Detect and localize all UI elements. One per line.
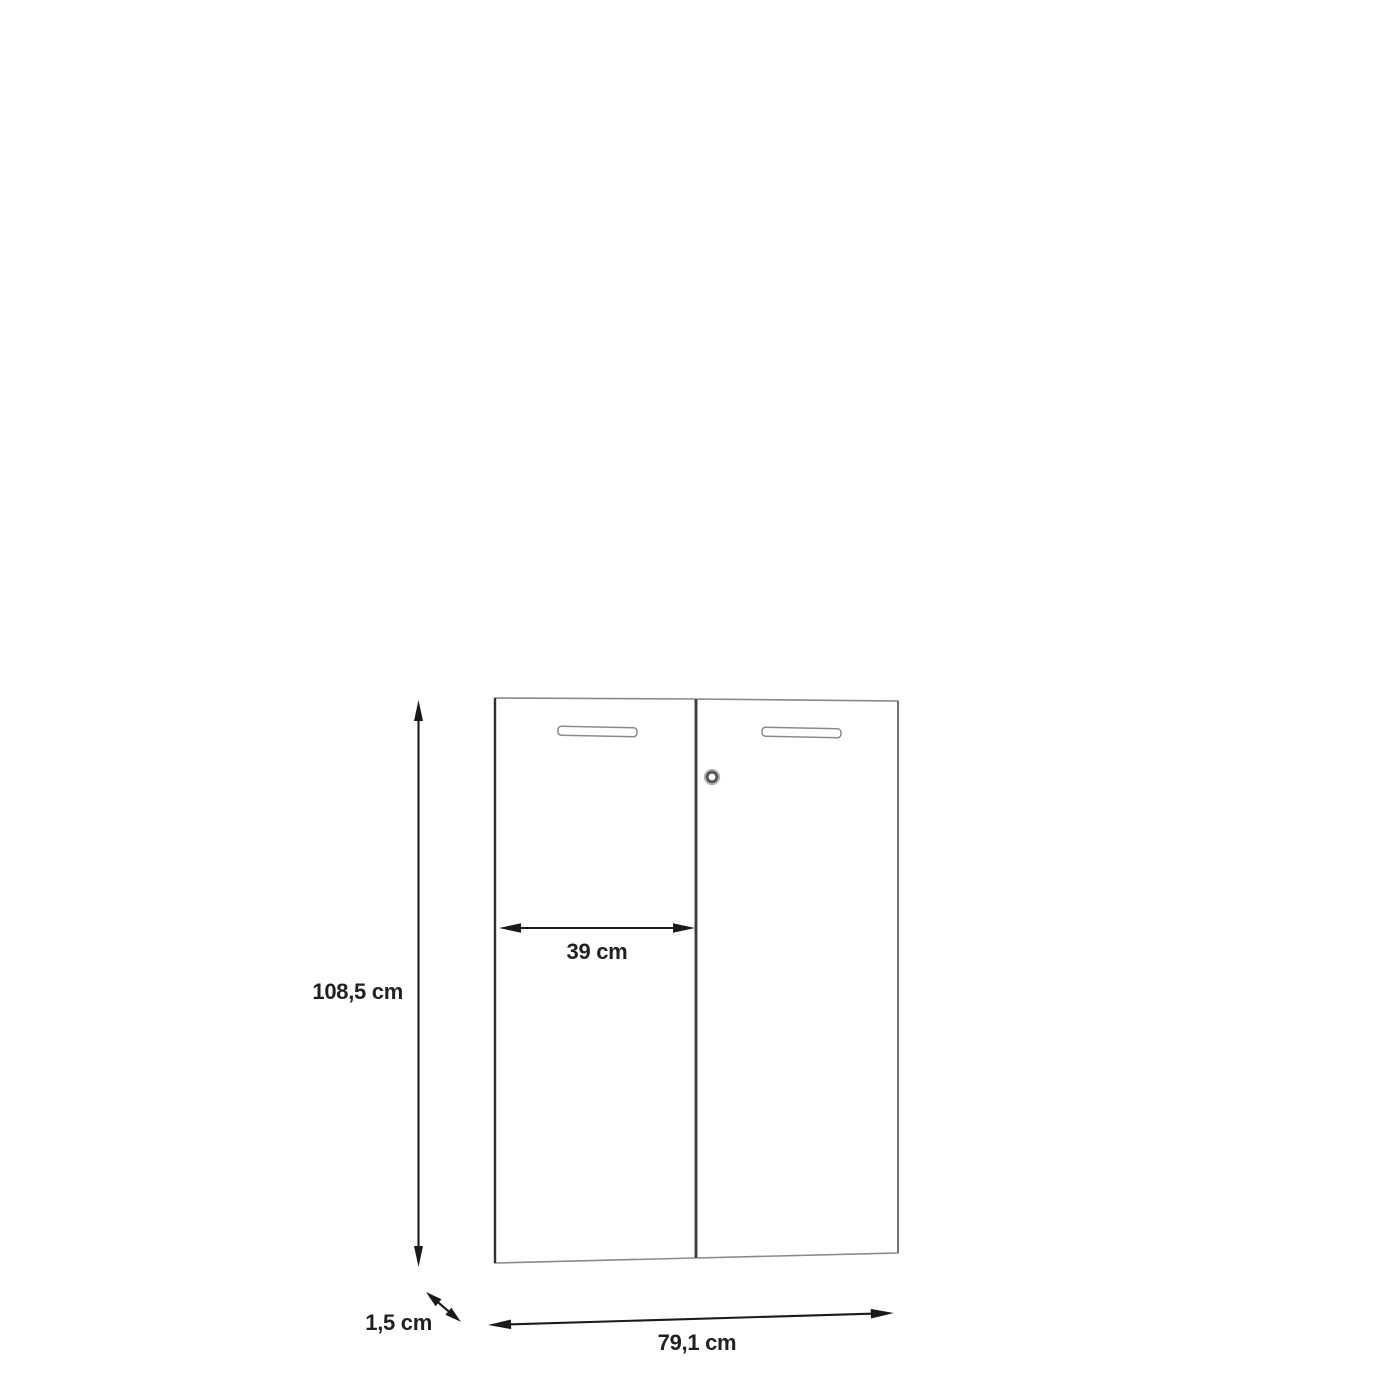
height-dimension: 108,5 cm xyxy=(312,700,423,1267)
right-door-panel xyxy=(697,699,898,1258)
cabinet-doors xyxy=(495,698,898,1263)
diagram-svg: 108,5 cm 39 cm 79,1 cm 1,5 cm xyxy=(0,0,1400,1400)
dimension-diagram: 108,5 cm 39 cm 79,1 cm 1,5 cm xyxy=(0,0,1400,1400)
total-width-dimension: 79,1 cm xyxy=(488,1308,894,1355)
thickness-dimension: 1,5 cm xyxy=(365,1289,464,1335)
total-width-dimension-label: 79,1 cm xyxy=(658,1330,737,1355)
total-width-arrowhead-left xyxy=(488,1320,511,1330)
lock-cylinder xyxy=(704,769,719,784)
door-width-dimension-label: 39 cm xyxy=(567,939,628,964)
lock-keyhole xyxy=(707,772,717,782)
height-arrowhead-down xyxy=(414,1246,423,1267)
total-width-arrowhead-right xyxy=(871,1308,894,1318)
height-dimension-label: 108,5 cm xyxy=(312,979,403,1004)
left-door-panel xyxy=(495,698,695,1263)
right-door-handle-groove xyxy=(762,727,841,738)
thickness-dimension-label: 1,5 cm xyxy=(365,1310,432,1335)
total-width-arrow xyxy=(488,1308,894,1330)
height-arrowhead-up xyxy=(414,700,423,721)
left-door-handle-groove xyxy=(558,726,637,737)
total-width-dimension-line xyxy=(507,1314,875,1325)
